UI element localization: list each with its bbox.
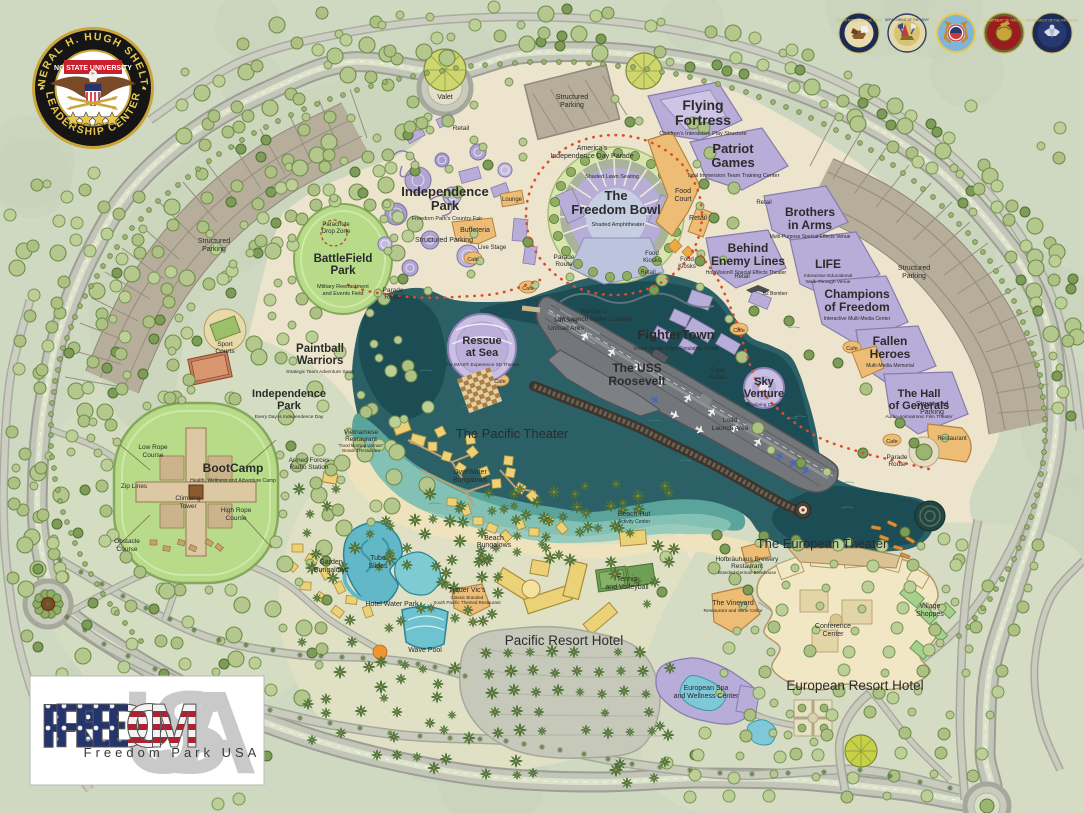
svg-text:Center: Center <box>822 631 844 638</box>
svg-text:DEPARTMENT OF THE ARMY: DEPARTMENT OF THE ARMY <box>885 18 930 22</box>
svg-text:Parachute: Parachute <box>322 222 350 228</box>
svg-text:LIM Launch Roller Coaster: LIM Launch Roller Coaster <box>554 316 632 323</box>
svg-text:Live Stage: Live Stage <box>478 245 507 251</box>
svg-text:Bungalows: Bungalows <box>314 567 349 574</box>
svg-text:Slides: Slides <box>368 563 388 570</box>
svg-text:Shaded Amphitheater: Shaded Amphitheater <box>592 222 645 228</box>
svg-text:Cafe: Cafe <box>522 286 534 292</box>
svg-text:Every Day is Independence Day: Every Day is Independence Day <box>255 414 324 420</box>
svg-text:at Sea: at Sea <box>466 347 499 359</box>
svg-text:Course: Course <box>117 546 138 553</box>
svg-text:Total Immersion Team Training: Total Immersion Team Training Center <box>687 173 780 179</box>
svg-text:Food: Food <box>675 188 691 195</box>
svg-text:Retail: Retail <box>453 125 470 132</box>
svg-text:Cafe: Cafe <box>886 439 898 445</box>
svg-text:Structured: Structured <box>916 401 948 408</box>
svg-text:Patriot: Patriot <box>712 141 754 156</box>
svg-text:Structured: Structured <box>556 94 588 101</box>
svg-text:Walk-Through Venue: Walk-Through Venue <box>806 279 851 285</box>
svg-text:Restaurant: Restaurant <box>731 563 763 570</box>
svg-text:Enemy Lines: Enemy Lines <box>711 254 785 268</box>
svg-text:Tennis: Tennis <box>617 576 638 583</box>
svg-text:DEPARTMENT OF THE AIR FORCE: DEPARTMENT OF THE AIR FORCE <box>1026 19 1078 23</box>
svg-text:Park: Park <box>277 400 302 412</box>
svg-text:Valet: Valet <box>437 94 452 101</box>
svg-text:and Wellness Center: and Wellness Center <box>674 693 740 700</box>
svg-text:Bungalows: Bungalows <box>477 542 512 549</box>
svg-text:Activity Center: Activity Center <box>618 519 651 525</box>
svg-text:Park: Park <box>331 265 357 277</box>
svg-text:Unload Area: Unload Area <box>548 325 584 332</box>
svg-text:Cafe: Cafe <box>733 328 745 334</box>
svg-text:Buffeteria: Buffeteria <box>460 227 490 234</box>
svg-text:Structured: Structured <box>198 238 230 245</box>
svg-text:Multi-Purpose Special Effects: Multi-Purpose Special Effects Venue <box>770 234 851 240</box>
svg-text:European Spa: European Spa <box>684 685 729 692</box>
svg-text:Retail: Retail <box>689 215 707 222</box>
svg-text:Park: Park <box>431 198 460 213</box>
svg-text:The USS: The USS <box>612 361 661 375</box>
svg-text:Kiosks: Kiosks <box>709 375 727 381</box>
svg-text:Course: Course <box>143 452 164 459</box>
svg-text:Low Rope: Low Rope <box>138 444 168 451</box>
svg-text:Structured: Structured <box>898 265 930 272</box>
svg-text:LIFE: LIFE <box>815 257 841 271</box>
svg-text:Bungalows: Bungalows <box>453 477 488 484</box>
svg-text:Route: Route <box>888 461 906 468</box>
svg-text:Parade: Parade <box>554 254 575 261</box>
svg-text:Flying: Flying <box>682 97 723 113</box>
svg-text:Court: Court <box>674 196 691 203</box>
svg-text:Branded German Brewhouse: Branded German Brewhouse <box>718 570 777 575</box>
svg-text:Venture: Venture <box>744 388 784 400</box>
svg-text:in Arms: in Arms <box>788 218 833 232</box>
svg-text:Beach Hut: Beach Hut <box>618 511 651 518</box>
svg-text:Cafe: Cafe <box>846 346 858 352</box>
svg-text:Parking: Parking <box>560 102 584 109</box>
svg-text:South Pacific Themed Restauran: South Pacific Themed Restaurant <box>433 600 501 605</box>
svg-text:The European Theater: The European Theater <box>757 536 888 551</box>
svg-text:Parking: Parking <box>902 273 926 280</box>
svg-text:Obstacle: Obstacle <box>114 538 140 545</box>
svg-text:Rescue: Rescue <box>462 335 501 347</box>
svg-text:Warriors: Warriors <box>297 355 344 367</box>
svg-text:Hotel Water Park: Hotel Water Park <box>365 601 419 608</box>
svg-text:Military Reenactment: Military Reenactment <box>317 284 369 290</box>
svg-text:Games: Games <box>711 155 754 170</box>
svg-text:Retail: Retail <box>640 270 655 276</box>
svg-text:Retail: Retail <box>756 200 771 206</box>
svg-text:Tube: Tube <box>370 555 386 562</box>
svg-text:Wave Pool: Wave Pool <box>408 647 442 654</box>
svg-text:Drop Zone: Drop Zone <box>322 229 351 235</box>
svg-text:Fallen: Fallen <box>873 334 908 348</box>
svg-text:Food: Food <box>711 368 725 374</box>
svg-text:Freedom Park's Country Fair: Freedom Park's Country Fair <box>412 216 483 222</box>
svg-text:Parking: Parking <box>202 246 226 253</box>
svg-text:Lounge: Lounge <box>502 197 523 203</box>
svg-text:Route: Route <box>555 261 573 268</box>
svg-text:Health, Wellness and Adventure: Health, Wellness and Adventure Camp <box>190 478 276 484</box>
svg-text:and Volleyball: and Volleyball <box>605 584 649 591</box>
svg-text:European Resort Hotel: European Resort Hotel <box>786 678 923 693</box>
svg-text:Behind: Behind <box>728 241 769 255</box>
svg-text:Cafe: Cafe <box>467 257 479 263</box>
svg-text:Food: Food <box>645 251 659 257</box>
svg-text:Parade: Parade <box>887 454 908 461</box>
svg-text:The Vineyard: The Vineyard <box>712 600 754 607</box>
svg-text:Radio Station: Radio Station <box>289 464 328 471</box>
svg-text:The IMAX® Experience 3D Theate: The IMAX® Experience 3D Theater <box>444 361 520 368</box>
svg-text:Vietnamese: Vietnamese <box>344 429 379 436</box>
svg-text:Load: Load <box>723 417 738 424</box>
svg-text:FighterTown: FighterTown <box>637 327 714 342</box>
svg-text:Hofbräuhaus Brewery: Hofbräuhaus Brewery <box>716 556 780 563</box>
svg-text:Independence: Independence <box>252 388 326 400</box>
svg-text:Independence: Independence <box>401 184 488 199</box>
svg-text:Branded Restaurant: Branded Restaurant <box>342 448 380 453</box>
svg-text:and Events Field: and Events Field <box>323 291 364 297</box>
svg-text:Paintball: Paintball <box>296 343 344 355</box>
svg-text:Strategic Team Adventure Sport: Strategic Team Adventure Sport <box>286 369 354 375</box>
svg-text:Restaurant and Wine Cellar: Restaurant and Wine Cellar <box>704 608 763 614</box>
svg-text:Skydiving Center: Skydiving Center <box>746 402 783 408</box>
svg-text:Parade: Parade <box>383 287 404 294</box>
svg-text:Parking: Parking <box>920 409 944 416</box>
svg-text:Restaurant: Restaurant <box>345 436 377 443</box>
svg-text:Restaurant: Restaurant <box>937 436 967 442</box>
svg-text:Fortress: Fortress <box>675 112 731 128</box>
svg-text:Freedom Park USA: Freedom Park USA <box>84 745 261 760</box>
svg-text:TopGun'z: TopGun'z <box>579 308 606 315</box>
svg-text:The Hall: The Hall <box>898 388 941 400</box>
svg-text:Sky: Sky <box>754 376 774 388</box>
svg-text:B2 Bomber: B2 Bomber <box>762 291 787 297</box>
svg-text:DEPARTMENT OF THE NAVY: DEPARTMENT OF THE NAVY <box>982 19 1026 23</box>
svg-text:Independence Day Parade: Independence Day Parade <box>550 153 633 160</box>
svg-text:of Freedom: of Freedom <box>824 300 889 314</box>
svg-text:Sport: Sport <box>217 341 233 348</box>
svg-text:The: The <box>604 188 627 203</box>
svg-text:Garden: Garden <box>319 559 342 566</box>
svg-text:Freedom Bowl: Freedom Bowl <box>571 202 661 217</box>
svg-text:Zip Lines: Zip Lines <box>121 483 148 490</box>
svg-text:BattleField: BattleField <box>314 253 373 265</box>
svg-text:Tower: Tower <box>179 503 197 510</box>
svg-text:America's: America's <box>577 145 608 152</box>
svg-text:Cafe: Cafe <box>494 379 506 385</box>
svg-text:Heroes: Heroes <box>870 347 911 361</box>
svg-text:Retail: Retail <box>734 274 749 280</box>
svg-text:Roosevelt: Roosevelt <box>608 374 665 388</box>
svg-text:Shoppes: Shoppes <box>916 611 944 618</box>
svg-text:Interactive Educational: Interactive Educational <box>804 273 853 279</box>
svg-text:Courts: Courts <box>215 348 235 355</box>
svg-text:BootCamp: BootCamp <box>203 461 264 475</box>
svg-text:Children's Interactive Play St: Children's Interactive Play Structure <box>659 131 746 137</box>
svg-text:Armed Forces: Armed Forces <box>289 457 331 464</box>
svg-text:Pacific Resort Hotel: Pacific Resort Hotel <box>505 633 624 648</box>
svg-text:DEPARTMENT OF THE NAVY: DEPARTMENT OF THE NAVY <box>836 19 883 23</box>
svg-text:Kiosks: Kiosks <box>678 264 696 270</box>
svg-text:Course: Course <box>226 515 247 522</box>
svg-text:Brothers: Brothers <box>785 205 835 219</box>
svg-text:Interactive Multi-Media Center: Interactive Multi-Media Center <box>824 316 891 322</box>
svg-text:Conference: Conference <box>815 623 851 630</box>
svg-text:Route: Route <box>384 294 402 301</box>
svg-text:OverWater: OverWater <box>453 469 487 476</box>
svg-text:High Rope: High Rope <box>221 507 252 514</box>
svg-text:Village: Village <box>920 603 941 610</box>
svg-text:The Pacific Theater: The Pacific Theater <box>456 426 569 441</box>
svg-text:Climbing: Climbing <box>175 495 201 502</box>
svg-text:Trader Vic's: Trader Vic's <box>449 587 486 594</box>
svg-text:Launch Area: Launch Area <box>712 425 749 432</box>
svg-text:Virtual Reality Flight Simulat: Virtual Reality Flight Simulation Center <box>633 346 719 352</box>
svg-text:Champions: Champions <box>824 287 890 301</box>
svg-text:Shaded Lawn Seating: Shaded Lawn Seating <box>585 174 639 180</box>
svg-text:Structured Parking: Structured Parking <box>415 237 473 244</box>
svg-text:Multi-Media Memorial: Multi-Media Memorial <box>866 363 914 369</box>
svg-text:Beach: Beach <box>484 535 504 542</box>
svg-text:Kiosks: Kiosks <box>643 258 661 264</box>
svg-text:Food: Food <box>680 257 694 263</box>
